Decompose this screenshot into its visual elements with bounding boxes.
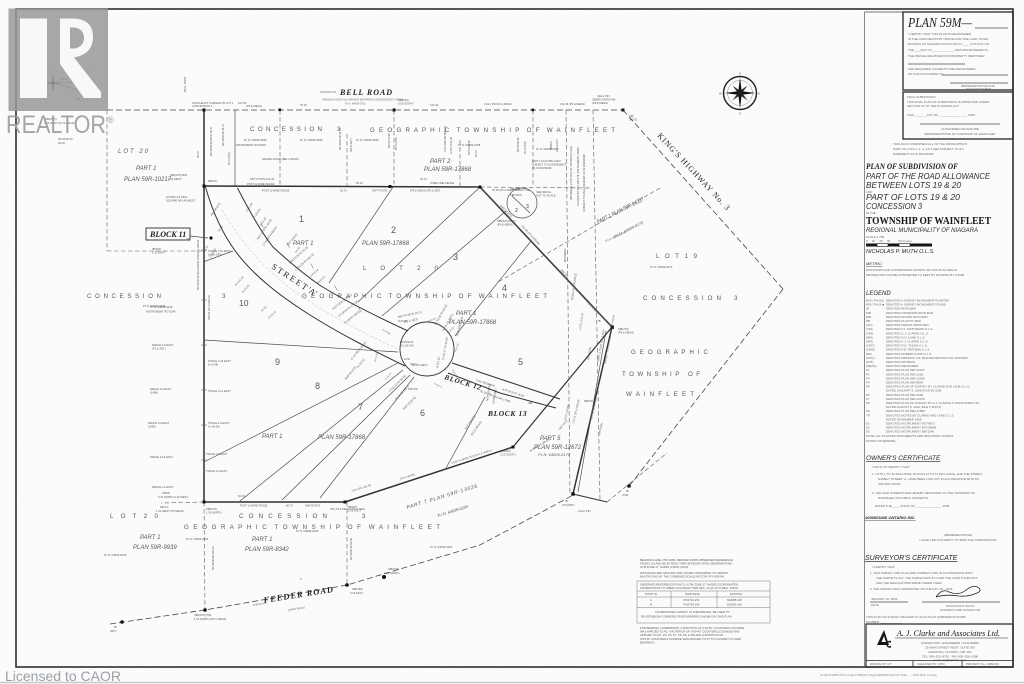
svg-text:®: ® [107, 115, 114, 125]
svg-text:Licensed to CAOR: Licensed to CAOR [5, 668, 121, 684]
svg-text:REALTOR: REALTOR [6, 111, 106, 139]
